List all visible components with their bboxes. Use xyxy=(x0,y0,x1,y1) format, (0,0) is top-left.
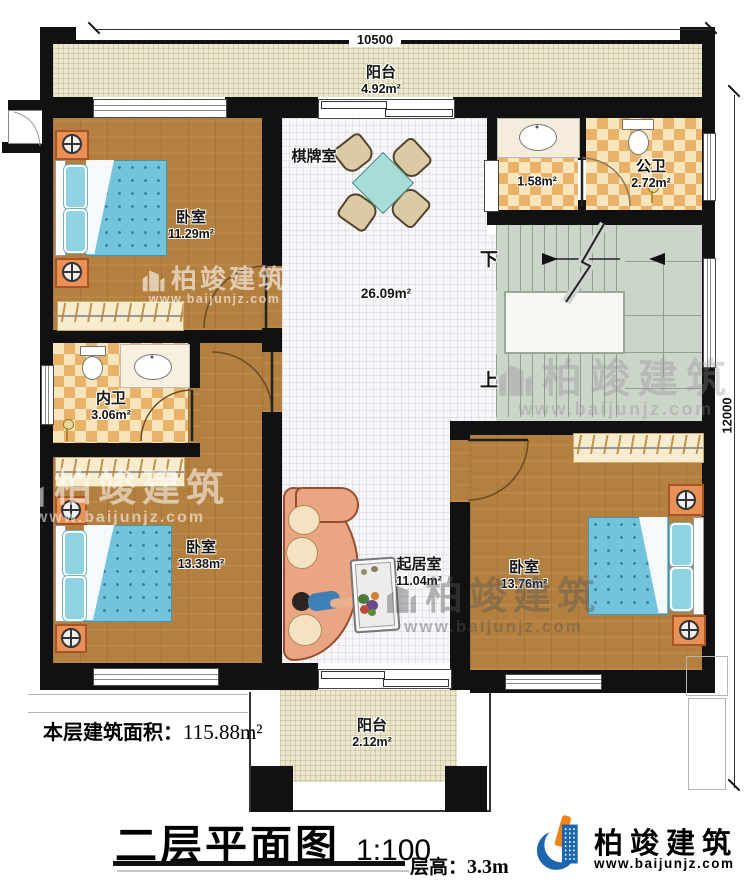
north-wall-b xyxy=(225,97,318,118)
room-name: 阳台 xyxy=(361,64,401,82)
bath-entry-opening xyxy=(484,160,499,212)
room-label-balcony-bottom: 阳台 2.12m² xyxy=(352,717,392,749)
flowers xyxy=(368,609,376,616)
stairs-winder-line xyxy=(625,261,702,262)
stairs-winder-line xyxy=(625,352,702,353)
porch-line xyxy=(28,694,248,695)
lamp-icon xyxy=(676,490,696,510)
dim-tick xyxy=(88,22,101,35)
room-area: 1.58m² xyxy=(517,175,557,190)
toilet-icon xyxy=(622,119,654,130)
hall-floor-mid xyxy=(282,235,496,421)
floor-plan: 阳台 4.92m² 棋牌室 26.09m² 卧室 11.29m² 1.58m² … xyxy=(0,0,750,884)
room-name: 阳台 xyxy=(352,717,392,735)
bed-pillow xyxy=(670,567,693,611)
room-label-living: 起居室 11.04m² xyxy=(396,556,442,588)
bath-west-wall xyxy=(487,118,497,160)
floor-area-label: 本层建筑面积： xyxy=(43,722,183,744)
balcony-top-sliding-door xyxy=(318,99,455,119)
brand-website: www.baijunjz.com xyxy=(594,856,735,871)
door-opening xyxy=(262,266,282,328)
title-underline-thin xyxy=(117,870,409,872)
flue-box xyxy=(8,110,42,144)
south-wall-stub xyxy=(286,663,318,690)
room-area: 13.76m² xyxy=(501,576,548,591)
bed-pillow xyxy=(670,523,693,567)
balcony-bottom-sliding-door xyxy=(318,669,452,689)
room-name: 公卫 xyxy=(631,158,671,176)
stairs-up-label: 上 xyxy=(480,370,498,391)
balcony-pillar-right xyxy=(445,766,487,812)
room-area: 13.38m² xyxy=(178,556,225,571)
room-label-chess: 棋牌室 xyxy=(291,148,336,166)
door-opening xyxy=(262,352,282,412)
room-area: 4.92m² xyxy=(361,81,401,96)
stairs-winder-line xyxy=(625,388,702,389)
west-window-innerbath xyxy=(41,365,54,425)
room-area: 26.09m² xyxy=(361,286,411,302)
flue-stub-top xyxy=(8,100,41,110)
sink-icon xyxy=(134,354,172,380)
sliding-door-panel xyxy=(321,101,387,109)
lamp-icon xyxy=(62,262,82,282)
room-name: 内卫 xyxy=(91,390,131,408)
room-name: 棋牌室 xyxy=(291,148,336,166)
stairs-down-label: 下 xyxy=(480,249,498,270)
side-pad-outline xyxy=(686,656,728,696)
room-area: 2.72m² xyxy=(631,175,671,190)
lamp-icon xyxy=(62,134,82,154)
nightstand xyxy=(55,258,89,288)
bed-pillow xyxy=(63,576,86,621)
stairs-void xyxy=(504,291,625,354)
room-label-bath-vestibule: 1.58m² xyxy=(517,175,557,190)
nightstand xyxy=(672,615,706,646)
title-underline xyxy=(113,861,405,866)
floor-height-label: 层高： xyxy=(410,857,467,878)
bedroom-nw-north-window xyxy=(93,99,227,118)
sink-icon xyxy=(519,124,557,151)
corridor-east-wall xyxy=(262,412,282,663)
room-area: 11.29m² xyxy=(168,226,214,241)
bedroom-sw-south-window xyxy=(93,668,219,686)
wardrobe xyxy=(573,433,704,463)
lamp-icon xyxy=(61,500,81,520)
nightstand xyxy=(55,130,89,160)
dim-label-width: 10500 xyxy=(349,32,401,47)
stairs-lower-flight xyxy=(496,354,625,417)
floor-height-line: 层高：3.3m xyxy=(410,852,509,879)
inner-bath-south-wall xyxy=(53,443,200,457)
dim-label-height: 12000 xyxy=(720,386,735,446)
lamp-icon xyxy=(679,620,699,640)
bed-pillow xyxy=(63,531,86,576)
bedroom-se-west-wall-top xyxy=(450,421,470,440)
room-name: 起居室 xyxy=(396,556,442,574)
lamp-icon xyxy=(61,628,81,648)
sofa-cushion xyxy=(288,614,322,646)
room-label-inner-bath: 内卫 3.06m² xyxy=(91,390,131,422)
door-opening xyxy=(188,388,200,443)
room-name: 卧室 xyxy=(501,559,548,577)
bedroom-se-south-window xyxy=(505,674,602,690)
brand-logo-icon xyxy=(536,813,586,875)
wardrobe xyxy=(55,457,185,487)
toilet-bowl-icon xyxy=(82,356,103,380)
wardrobe xyxy=(57,301,184,331)
east-window-stairs xyxy=(703,258,716,368)
bed-pillow xyxy=(64,209,87,253)
room-area: 11.04m² xyxy=(396,573,442,588)
flowers xyxy=(371,592,379,600)
room-area: 3.06m² xyxy=(91,407,131,422)
stairs-winder-line xyxy=(625,315,702,316)
sliding-door-panel xyxy=(385,109,453,117)
bedroom-nw-south-wall xyxy=(53,330,282,343)
room-label-bedroom-nw: 卧室 11.29m² xyxy=(168,209,214,241)
floor-area-line: 本层建筑面积：115.88m² xyxy=(43,716,263,745)
sliding-door-panel xyxy=(321,671,385,679)
dim-line-top xyxy=(95,29,713,30)
nightstand xyxy=(55,624,87,653)
bath-south-wall xyxy=(487,210,702,225)
east-window-bath xyxy=(703,133,716,201)
bed-pillow xyxy=(64,165,87,209)
toilet-icon xyxy=(80,346,106,356)
north-wall-c xyxy=(453,97,702,118)
bedroom-nw-east-wall xyxy=(262,118,282,266)
sofa-cushion xyxy=(288,505,320,535)
porch-line xyxy=(28,712,248,713)
toilet-bowl-icon xyxy=(628,130,649,155)
balcony-pillar-left xyxy=(251,766,293,812)
sofa-cushion xyxy=(286,537,318,569)
room-name: 卧室 xyxy=(168,209,214,227)
room-area: 2.12m² xyxy=(352,734,392,749)
floor-area-value: 115.88m² xyxy=(183,720,263,744)
table-item xyxy=(361,569,367,575)
table-item xyxy=(371,566,378,572)
floor-drain-icon xyxy=(63,419,74,430)
floor-height-value: 3.3m xyxy=(467,856,509,878)
bed-headboard xyxy=(693,517,704,615)
room-label-bedroom-se: 卧室 13.76m² xyxy=(501,559,548,591)
north-wall-a xyxy=(53,97,93,118)
room-label-public-bath: 公卫 2.72m² xyxy=(631,158,671,190)
nightstand xyxy=(55,496,87,525)
nightstand xyxy=(668,484,704,516)
bedroom-se-west-wall-bot xyxy=(450,502,470,690)
room-label-balcony-top: 阳台 4.92m² xyxy=(361,64,401,96)
side-pad-outline xyxy=(688,698,726,790)
room-name: 卧室 xyxy=(178,539,225,557)
room-label-hall-area: 26.09m² xyxy=(361,286,411,302)
stairs-upper-flight xyxy=(496,225,625,291)
sliding-door-panel xyxy=(383,679,449,687)
room-label-bedroom-sw: 卧室 13.38m² xyxy=(178,539,225,571)
door-opening xyxy=(450,440,470,502)
